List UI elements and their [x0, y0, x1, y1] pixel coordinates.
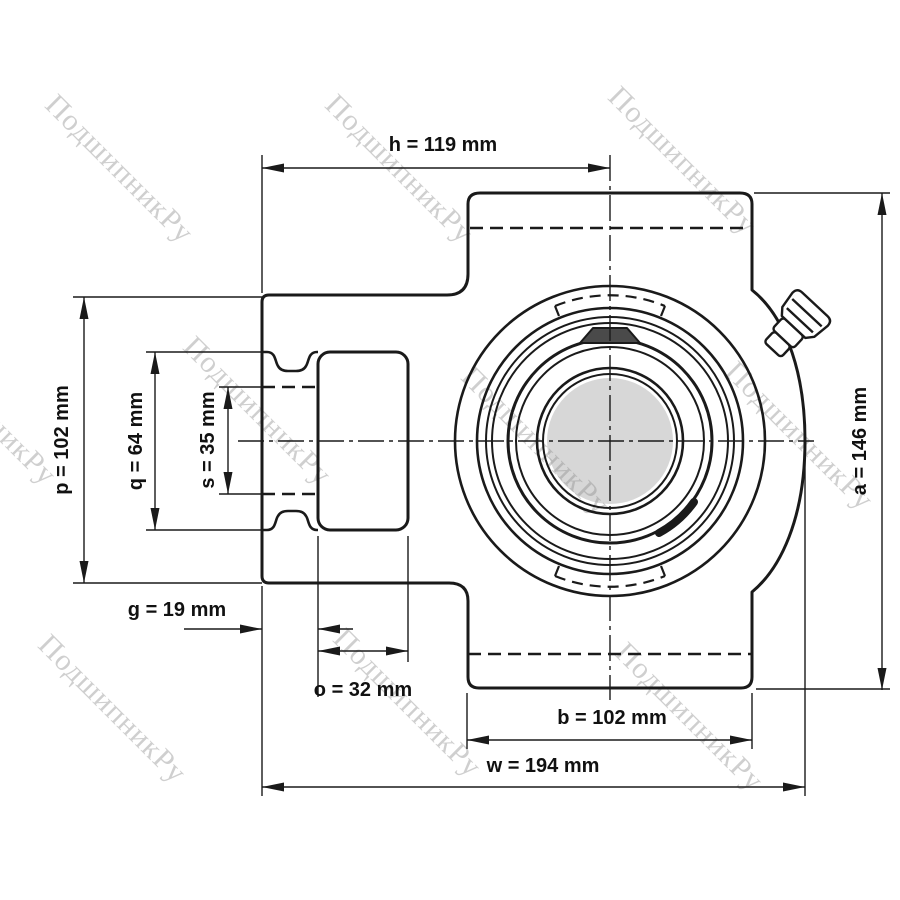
bearing-drawing: h = 119 mm p = 102 mm q = 64 mm s = 35 m…: [0, 0, 900, 900]
dim-label-o: o = 32 mm: [314, 679, 412, 701]
dim-label-a: a = 146 mm: [849, 387, 871, 495]
dim-b: b = 102 mm: [467, 693, 752, 749]
page: { "page": { "background": "#ffffff", "li…: [0, 0, 900, 900]
dim-label-g: g = 19 mm: [128, 599, 226, 621]
dim-label-s: s = 35 mm: [197, 391, 219, 488]
dim-o: o = 32 mm: [314, 536, 412, 701]
dim-label-b: b = 102 mm: [557, 707, 667, 729]
dim-label-w: w = 194 mm: [486, 755, 600, 777]
dim-g: g = 19 mm: [128, 599, 353, 634]
rail-bottom-groove: [262, 511, 318, 530]
dim-label-p: p = 102 mm: [51, 385, 73, 495]
dim-p: p = 102 mm: [51, 297, 262, 583]
rail-top-groove: [262, 352, 318, 371]
dim-label-q: q = 64 mm: [125, 392, 147, 490]
dim-h: h = 119 mm: [262, 134, 610, 293]
dim-label-h: h = 119 mm: [389, 134, 497, 156]
